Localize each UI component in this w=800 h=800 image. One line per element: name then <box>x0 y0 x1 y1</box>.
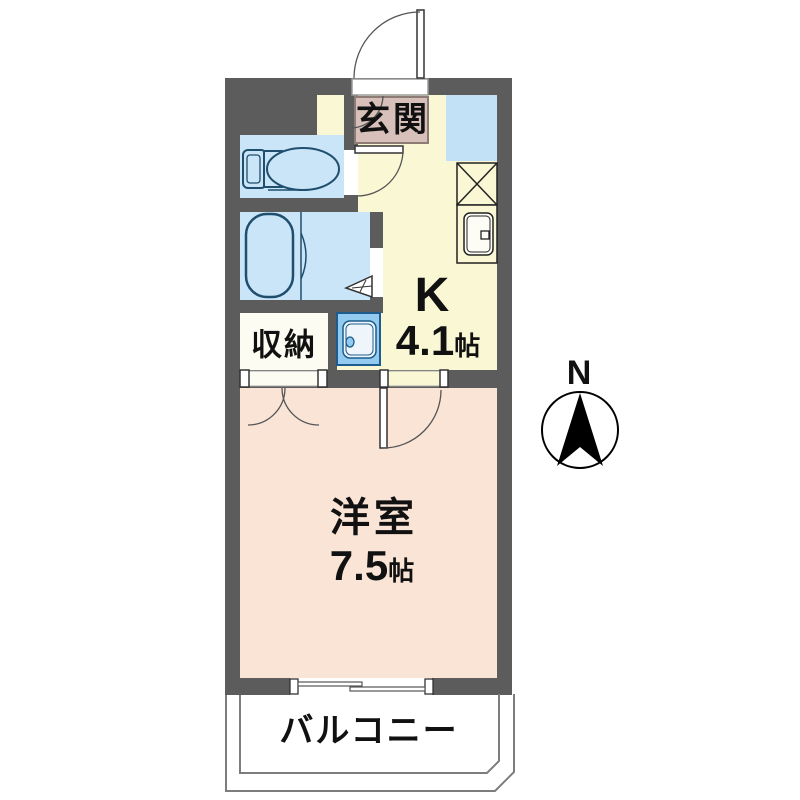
wall-toilet-bottom <box>240 198 358 212</box>
washbasin-faucet <box>346 337 354 347</box>
toilet-bowl <box>267 148 339 190</box>
kitchen-size-value: 4.1 <box>396 317 454 364</box>
kitchen-counter <box>457 163 497 263</box>
western-room-size-value: 7.5 <box>330 542 388 589</box>
entrance-door <box>354 10 424 78</box>
toilet-tank-inner <box>247 155 260 183</box>
kitchen-door-opening <box>388 371 441 386</box>
entrance-label: 玄関 <box>356 103 430 137</box>
kitchen-size-unit: 帖 <box>454 331 480 361</box>
wall-left <box>225 78 240 695</box>
window-post-left <box>290 679 298 694</box>
toilet-icon <box>243 148 339 190</box>
floorplan-page: 玄関 収納 K 4.1帖 洋室 7.5帖 バルコニー N <box>0 0 800 800</box>
storage-label: 収納 <box>251 330 317 361</box>
toilet-door-leaf <box>355 146 403 153</box>
storage-door-opening <box>248 371 319 386</box>
compass <box>542 392 618 468</box>
refrigerator-space <box>446 95 497 161</box>
wall-bathroom-bottom <box>225 300 383 313</box>
compass-north-label: N <box>567 356 592 390</box>
sink-drain <box>481 231 489 239</box>
balcony-window <box>290 678 433 695</box>
wall-block-top-left <box>240 95 317 135</box>
washbasin <box>337 313 380 365</box>
balcony-label: バルコニー <box>279 714 458 748</box>
window-post-right <box>425 679 433 694</box>
kitchen-size-label: 4.1帖 <box>396 320 480 362</box>
western-room-label: 洋室 <box>330 498 418 538</box>
kitchen-room-door-leaf <box>380 388 387 448</box>
entrance-door-arc <box>354 12 420 78</box>
western-room-size-label: 7.5帖 <box>330 545 414 587</box>
entrance-opening <box>352 79 428 95</box>
toilet-door-opening <box>344 150 358 195</box>
western-room-size-unit: 帖 <box>388 556 414 586</box>
window-sliding-panel-right <box>350 687 425 691</box>
window-sliding-panel-left <box>298 682 362 686</box>
bathtub <box>246 214 293 297</box>
entrance-door-leaf <box>417 10 424 78</box>
wall-right <box>497 78 512 693</box>
kitchen-label: K <box>415 272 450 320</box>
